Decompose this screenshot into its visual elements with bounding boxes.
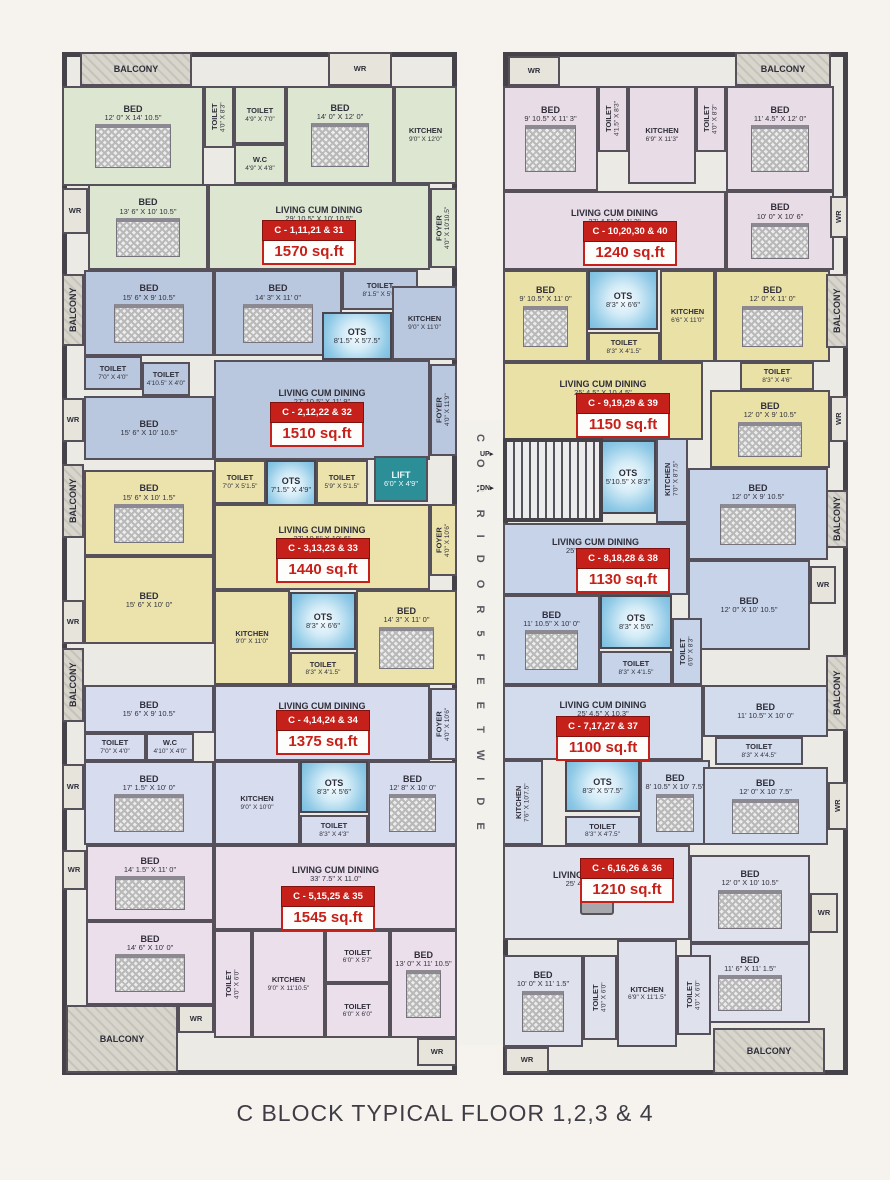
room-bed: BED15' 6" X 10' 10.5" xyxy=(84,396,214,460)
toilet-dimensions: 4'0" X 6'0" xyxy=(601,983,608,1013)
kitchen-label: KITCHEN xyxy=(408,315,441,323)
kitchen-dimensions: 9'0" X 11'0" xyxy=(236,638,269,645)
bed-dimensions: 12' 0" X 10' 7.5" xyxy=(739,788,792,796)
bed-dimensions: 12' 0" X 14' 10.5" xyxy=(105,114,162,122)
room-balcony: BALCONY xyxy=(62,274,84,346)
stairs-up-text: UP xyxy=(480,451,490,458)
room-kitchen: KITCHEN7'6" X 10'7.5" xyxy=(503,760,543,845)
room-bed: BED14' 1.5" X 11' 0" xyxy=(86,845,214,921)
kitchen-label: KITCHEN xyxy=(630,986,663,994)
toilet-label: TOILET xyxy=(611,339,638,347)
toilet-label: TOILET xyxy=(102,739,129,747)
kitchen-label: KITCHEN xyxy=(240,795,273,803)
toilet-label: TOILET xyxy=(225,971,233,998)
kitchen-dimensions: 7'0" X 8'7.5" xyxy=(673,462,680,497)
room-ots: OTS8'3" X 5'6" xyxy=(600,595,672,649)
room-bed: BED12' 0" X 9' 10.5" xyxy=(688,468,828,560)
room-ots: OTS8'3" X 6'6" xyxy=(588,270,658,330)
room-ots: OTS7'1.5" X 4'9" xyxy=(266,460,316,510)
unit-code: C - 4,14,24 & 34 xyxy=(276,710,370,731)
bed-icon xyxy=(751,223,809,259)
foyer-label: FOYER xyxy=(436,711,444,737)
toilet-dimensions: 8'3" X 4'1.5" xyxy=(306,669,341,676)
room-wr: WR xyxy=(830,396,848,442)
room-wr: WR xyxy=(505,1047,549,1073)
unit-code: C - 7,17,27 & 37 xyxy=(556,716,650,737)
toilet-label: TOILET xyxy=(227,474,254,482)
room-bed: BED15' 6" X 10' 1.5" xyxy=(84,470,214,556)
foyer-dimensions: 4'0" X 10'10.5" xyxy=(444,207,451,249)
unit-code: C - 2,12,22 & 32 xyxy=(270,402,364,423)
unit-label: C - 7,17,27 & 371100 sq.ft xyxy=(556,716,650,761)
kitchen-label: KITCHEN xyxy=(664,462,672,495)
bed-dimensions: 11' 10.5" X 10' 0" xyxy=(737,712,793,720)
room-ots: OTS8'3" X 5'7.5" xyxy=(565,760,640,812)
room-wr: WR xyxy=(62,850,86,890)
room-balcony: BALCONY xyxy=(66,1005,178,1073)
kitchen-dimensions: 6'9" X 11'1.5" xyxy=(628,994,666,1001)
room-kitchen: KITCHEN9'0" X 11'10.5" xyxy=(252,930,325,1038)
unit-code: C - 9,19,29 & 39 xyxy=(576,393,670,414)
wr-label: WR xyxy=(68,866,81,874)
bed-icon xyxy=(742,306,804,347)
bed-icon xyxy=(243,304,312,343)
room-bed: BED12' 0" X 11' 0" xyxy=(715,270,830,362)
bed-dimensions: 12' 0" X 10' 10.5" xyxy=(722,879,779,887)
bed-dimensions: 17' 1.5" X 10' 0" xyxy=(123,784,176,792)
room-wr: WR xyxy=(328,52,392,86)
room-bed: BED12' 0" X 10' 10.5" xyxy=(688,560,810,650)
bed-dimensions: 12' 0" X 10' 10.5" xyxy=(721,606,778,614)
unit-label: C - 10,20,30 & 401240 sq.ft xyxy=(583,221,677,266)
room-wc: W.C4'10" X 4'0" xyxy=(146,733,194,761)
bed-dimensions: 14' 0" X 12' 0" xyxy=(317,113,364,121)
room-bed: BED11' 10.5" X 10' 0" xyxy=(703,685,828,737)
stairs-up-label: UP▸ xyxy=(479,450,494,458)
toilet-label: TOILET xyxy=(686,982,694,1009)
bed-dimensions: 15' 6" X 9' 10.5" xyxy=(123,294,176,302)
toilet-label: TOILET xyxy=(310,661,337,669)
room-toilet: TOILET4'0" X 6'0" xyxy=(214,930,252,1038)
room-toilet: TOILET5'9" X 5'1.5" xyxy=(316,460,368,504)
bed-icon xyxy=(389,794,437,832)
toilet-label: TOILET xyxy=(605,106,613,133)
foyer-label: FOYER xyxy=(436,397,444,423)
unit-code: C - 6,16,26 & 36 xyxy=(580,858,674,879)
bed-icon xyxy=(523,306,568,347)
bed-label: BED xyxy=(770,202,789,212)
toilet-label: TOILET xyxy=(211,104,219,131)
stairs-dn-label: DN▸ xyxy=(479,484,495,492)
balcony-label: BALCONY xyxy=(100,1034,145,1044)
bed-dimensions: 9' 10.5" X 11' 0" xyxy=(519,295,571,303)
unit-label: C - 5,15,25 & 351545 sq.ft xyxy=(281,886,375,931)
toilet-label: TOILET xyxy=(623,660,650,668)
toilet-label: TOILET xyxy=(344,949,371,957)
room-toilet: TOILET4'1.5" X 8'3" xyxy=(598,86,628,152)
bed-icon xyxy=(406,970,442,1018)
toilet-dimensions: 7'0" X 5'1.5" xyxy=(223,483,258,490)
room-ots: OTS5'10.5" X 8'3" xyxy=(600,440,656,514)
toilet-dimensions: 8'3" X 4'3" xyxy=(319,831,349,838)
kitchen-label: KITCHEN xyxy=(272,976,305,984)
room-balcony: BALCONY xyxy=(62,464,84,538)
bed-dimensions: 15' 6" X 10' 1.5" xyxy=(123,494,176,502)
room-bed: BED8' 10.5" X 10' 7.5" xyxy=(640,760,710,845)
bed-dimensions: 13' 6" X 10' 10.5" xyxy=(120,208,177,216)
room-foyer: FOYER4'0" X 10'10.5" xyxy=(430,188,457,268)
kitchen-dimensions: 9'0" X 10'0" xyxy=(240,804,273,811)
toilet-dimensions: 6'0" X 5'7" xyxy=(343,957,373,964)
room-kitchen: KITCHEN9'0" X 11'0" xyxy=(392,286,457,360)
room-kitchen: KITCHEN6'9" X 11'1.5" xyxy=(617,940,677,1047)
toilet-label: TOILET xyxy=(703,106,711,133)
balcony-label: BALCONY xyxy=(832,671,842,716)
bed-icon xyxy=(114,794,184,832)
room-bed: BED15' 6" X 10' 0" xyxy=(84,556,214,644)
bed-icon xyxy=(311,123,369,167)
unit-label: C - 6,16,26 & 361210 sq.ft xyxy=(580,858,674,903)
room-bed: BED12' 0" X 9' 10.5" xyxy=(710,390,830,468)
room-bed: BED10' 0" X 10' 6" xyxy=(726,191,834,270)
wr-label: WR xyxy=(817,581,830,589)
unit-area: 1240 sq.ft xyxy=(583,242,677,266)
room-toilet: TOILET8'3" X 4'1.5" xyxy=(588,332,660,362)
kitchen-label: KITCHEN xyxy=(515,786,523,819)
room-wr: WR xyxy=(810,566,836,604)
unit-area: 1570 sq.ft xyxy=(262,241,356,265)
room-kitchen: KITCHEN6'9" X 11'3" xyxy=(628,86,696,184)
bed-dimensions: 9' 10.5" X 11' 3" xyxy=(524,115,576,123)
kitchen-dimensions: 9'0" X 12'0" xyxy=(409,136,442,143)
room-toilet: TOILET4'9" X 7'0" xyxy=(234,86,286,144)
unit-area: 1510 sq.ft xyxy=(270,423,364,447)
toilet-dimensions: 4'0" X 8'3" xyxy=(220,102,227,132)
balcony-label: BALCONY xyxy=(832,497,842,542)
room-bed: BED11' 10.5" X 10' 0" xyxy=(503,595,600,685)
bed-icon xyxy=(379,627,433,669)
room-balcony: BALCONY xyxy=(826,655,848,731)
toilet-dimensions: 8'3" X 4'4.5" xyxy=(742,752,777,759)
room-balcony: BALCONY xyxy=(80,52,192,86)
wr-label: WR xyxy=(521,1056,534,1064)
bed-dimensions: 13' 0" X 11' 10.5" xyxy=(395,960,451,968)
bed-dimensions: 12' 0" X 11' 0" xyxy=(750,295,796,303)
lift-dimensions: 6'0" X 4'9" xyxy=(384,480,418,488)
foyer-dimensions: 4'0" X 10'6" xyxy=(444,707,451,740)
ots-dimensions: 8'3" X 5'7.5" xyxy=(582,787,622,795)
room-toilet: TOILET7'0" X 4'0" xyxy=(84,356,142,390)
bed-icon xyxy=(525,125,576,172)
room-foyer: FOYER4'0" X 11'9" xyxy=(430,364,457,456)
kitchen-label: KITCHEN xyxy=(235,630,268,638)
room-bed: BED12' 0" X 14' 10.5" xyxy=(62,86,204,186)
wr-label: WR xyxy=(834,800,842,813)
toilet-label: TOILET xyxy=(329,474,356,482)
room-toilet: TOILET6'0" X 6'0" xyxy=(325,983,390,1038)
toilet-dimensions: 4'0" X 6'0" xyxy=(234,969,241,999)
toilet-label: TOILET xyxy=(247,107,274,115)
unit-label: C - 4,14,24 & 341375 sq.ft xyxy=(276,710,370,755)
unit-label: C - 9,19,29 & 391150 sq.ft xyxy=(576,393,670,438)
wr-label: WR xyxy=(69,207,82,215)
ots-dimensions: 8'3" X 5'6" xyxy=(317,788,351,796)
foyer-dimensions: 4'0" X 11'9" xyxy=(444,394,451,427)
balcony-label: BALCONY xyxy=(114,64,159,74)
room-kitchen: KITCHEN9'0" X 12'0" xyxy=(394,86,457,184)
room-toilet: TOILET8'3" X 4'3" xyxy=(300,815,368,845)
room-foyer: FOYER4'0" X 10'6" xyxy=(430,504,457,576)
corridor-label: C O R R I D O R 5 F E E T W I D E xyxy=(474,434,486,837)
room-wr: WR xyxy=(828,782,848,830)
kitchen-dimensions: 6'9" X 11'3" xyxy=(646,136,679,143)
bed-icon xyxy=(115,876,184,910)
kitchen-label: KITCHEN xyxy=(409,127,442,135)
room-toilet: TOILET4'0" X 8'3" xyxy=(204,86,234,148)
foyer-dimensions: 4'0" X 10'6" xyxy=(444,523,451,556)
room-toilet: TOILET8'3" X 4'7.5" xyxy=(565,816,640,845)
room-kitchen: KITCHEN7'0" X 8'7.5" xyxy=(656,435,688,523)
bed-dimensions: 12' 8" X 10' 0" xyxy=(389,784,436,792)
wc-dimensions: 4'10" X 4'0" xyxy=(153,748,186,755)
toilet-dimensions: 6'0" X 6'0" xyxy=(343,1011,373,1018)
room-bed: BED17' 1.5" X 10' 0" xyxy=(84,761,214,845)
wc-dimensions: 4'9" X 4'8" xyxy=(245,165,275,172)
kitchen-label: KITCHEN xyxy=(645,127,678,135)
kitchen-dimensions: 6'6" X 11'0" xyxy=(671,317,704,324)
unit-area: 1100 sq.ft xyxy=(556,737,650,761)
toilet-label: TOILET xyxy=(746,743,773,751)
ots-dimensions: 7'1.5" X 4'9" xyxy=(271,486,311,494)
bed-dimensions: 14' 1.5" X 11' 0" xyxy=(124,866,176,874)
wr-label: WR xyxy=(67,783,80,791)
room-bed: BED9' 10.5" X 11' 3" xyxy=(503,86,598,191)
bed-dimensions: 15' 6" X 10' 0" xyxy=(126,601,173,609)
bed-dimensions: 15' 6" X 9' 10.5" xyxy=(123,710,176,718)
bed-dimensions: 15' 6" X 10' 10.5" xyxy=(121,429,178,437)
bed-dimensions: 10' 0" X 10' 6" xyxy=(757,213,804,221)
toilet-label: TOILET xyxy=(344,1003,371,1011)
room-toilet: TOILET8'3" X 4'4.5" xyxy=(715,737,803,765)
room-balcony: BALCONY xyxy=(826,274,848,348)
room-wr: WR xyxy=(62,600,84,644)
bed-dimensions: 11' 10.5" X 10' 0" xyxy=(523,620,579,628)
room-ots: OTS8'1.5" X 5'7.5" xyxy=(322,312,392,360)
toilet-dimensions: 4'9" X 7'0" xyxy=(245,116,275,123)
room-bed: BED14' 3" X 11' 0" xyxy=(356,590,457,685)
room-wr: WR xyxy=(830,196,848,238)
bed-dimensions: 12' 0" X 9' 10.5" xyxy=(732,493,785,501)
balcony-label: BALCONY xyxy=(832,289,842,334)
toilet-label: TOILET xyxy=(100,365,127,373)
bed-dimensions: 11' 4.5" X 12' 0" xyxy=(754,115,806,123)
bed-icon xyxy=(114,504,184,543)
room-toilet: TOILET6'0" X 5'7" xyxy=(325,930,390,983)
room-ots: OTS8'3" X 6'6" xyxy=(290,592,356,650)
toilet-label: TOILET xyxy=(679,638,687,665)
toilet-label: TOILET xyxy=(321,822,348,830)
bed-icon xyxy=(720,504,796,545)
room-toilet: TOILET4'0" X 8'3" xyxy=(696,86,726,152)
wr-label: WR xyxy=(818,909,831,917)
unit-code: C - 1,11,21 & 31 xyxy=(262,220,356,241)
room-toilet: TOILET4'0" X 6'0" xyxy=(583,955,617,1040)
toilet-dimensions: 8'3" X 4'1.5" xyxy=(607,348,642,355)
wc-label: W.C xyxy=(163,739,177,747)
balcony-label: BALCONY xyxy=(747,1046,792,1056)
room-kitchen: KITCHEN9'0" X 11'0" xyxy=(214,590,290,685)
unit-code: C - 8,18,28 & 38 xyxy=(576,548,670,569)
wr-label: WR xyxy=(431,1048,444,1056)
room-bed: BED12' 8" X 10' 0" xyxy=(368,761,457,845)
toilet-dimensions: 5'9" X 5'1.5" xyxy=(325,483,360,490)
toilet-dimensions: 7'0" X 4'0" xyxy=(100,748,130,755)
toilet-dimensions: 8'3" X 4'6" xyxy=(762,377,792,384)
unit-label: C - 1,11,21 & 311570 sq.ft xyxy=(262,220,356,265)
room-wr: WR xyxy=(810,893,838,933)
unit-label: C - 3,13,23 & 331440 sq.ft xyxy=(276,538,370,583)
bed-icon xyxy=(738,422,803,457)
toilet-dimensions: 6'0" X 8'3" xyxy=(688,637,695,667)
room-toilet: TOILET8'3" X 4'1.5" xyxy=(600,651,672,685)
stairs-arrow-icon: ▸ xyxy=(490,451,494,458)
room-wr: WR xyxy=(508,56,560,86)
kitchen-dimensions: 7'6" X 10'7.5" xyxy=(524,783,531,822)
room-kitchen: KITCHEN9'0" X 10'0" xyxy=(214,761,300,845)
unit-area: 1130 sq.ft xyxy=(576,569,670,593)
toilet-dimensions: 4'0" X 8'3" xyxy=(712,104,719,134)
wr-label: WR xyxy=(835,211,843,224)
bed-dimensions: 14' 3" X 11' 0" xyxy=(384,616,430,624)
room-bed: BED14' 6" X 10' 0" xyxy=(86,921,214,1005)
toilet-dimensions: 4'0" X 6'0" xyxy=(695,980,702,1010)
room-bed: BED12' 0" X 10' 7.5" xyxy=(703,767,828,845)
room-wr: WR xyxy=(62,764,84,810)
wr-label: WR xyxy=(354,65,367,73)
unit-label: C - 8,18,28 & 381130 sq.ft xyxy=(576,548,670,593)
foyer-label: FOYER xyxy=(436,215,444,241)
room-bed: BED13' 0" X 11' 10.5" xyxy=(390,930,457,1038)
unit-area: 1375 sq.ft xyxy=(276,731,370,755)
room-toilet: TOILET6'0" X 8'3" xyxy=(672,618,702,685)
bed-icon xyxy=(718,890,783,929)
bed-icon xyxy=(718,975,783,1011)
room-toilet: TOILET4'10.5" X 4'0" xyxy=(142,362,190,396)
room-wr: WR xyxy=(62,188,88,234)
bed-icon xyxy=(95,124,172,168)
toilet-dimensions: 7'0" X 4'0" xyxy=(98,374,128,381)
bed-dimensions: 12' 0" X 9' 10.5" xyxy=(744,411,797,419)
room-wr: WR xyxy=(62,398,84,442)
kitchen-dimensions: 9'0" X 11'0" xyxy=(408,324,441,331)
wr-label: WR xyxy=(190,1015,203,1023)
bed-icon xyxy=(732,799,799,834)
toilet-dimensions: 8'3" X 4'1.5" xyxy=(619,669,654,676)
plan-title: C BLOCK TYPICAL FLOOR 1,2,3 & 4 xyxy=(0,1100,890,1127)
room-balcony: BALCONY xyxy=(62,648,84,722)
wr-label: WR xyxy=(67,618,80,626)
balcony-label: BALCONY xyxy=(68,288,78,333)
room-bed: BED15' 6" X 9' 10.5" xyxy=(84,685,214,733)
kitchen-dimensions: 9'0" X 11'10.5" xyxy=(268,985,310,992)
unit-area: 1545 sq.ft xyxy=(281,907,375,931)
toilet-dimensions: 8'3" X 4'7.5" xyxy=(585,831,620,838)
bed-icon xyxy=(656,794,693,832)
unit-area: 1150 sq.ft xyxy=(576,414,670,438)
room-foyer: FOYER4'0" X 10'6" xyxy=(430,688,457,760)
ots-dimensions: 8'3" X 6'6" xyxy=(306,622,340,630)
bed-icon xyxy=(525,630,577,670)
balcony-label: BALCONY xyxy=(68,663,78,708)
room-kitchen: KITCHEN6'6" X 11'0" xyxy=(660,270,715,362)
bed-icon xyxy=(751,125,809,172)
bed-dimensions: 14' 3" X 11' 0" xyxy=(255,294,301,302)
toilet-label: TOILET xyxy=(764,368,791,376)
balcony-label: BALCONY xyxy=(68,479,78,524)
foyer-label: FOYER xyxy=(436,527,444,553)
room-wc: W.C4'9" X 4'8" xyxy=(234,144,286,184)
toilet-label: TOILET xyxy=(589,823,616,831)
unit-area: 1440 sq.ft xyxy=(276,559,370,583)
room-balcony: BALCONY xyxy=(713,1028,825,1074)
stairs-arrow-icon: ▸ xyxy=(490,485,494,492)
toilet-label: TOILET xyxy=(153,371,180,379)
room-wr: WR xyxy=(417,1038,457,1066)
wr-label: WR xyxy=(528,67,541,75)
wc-label: W.C xyxy=(253,156,267,164)
unit-code: C - 3,13,23 & 33 xyxy=(276,538,370,559)
bed-dimensions: 14' 6" X 10' 0" xyxy=(127,944,174,952)
room-balcony: BALCONY xyxy=(826,490,848,548)
room-bed: BED15' 6" X 9' 10.5" xyxy=(84,270,214,356)
staircase xyxy=(503,438,603,522)
room-ots: OTS8'3" X 5'6" xyxy=(300,761,368,813)
floor-plan: C BLOCK TYPICAL FLOOR 1,2,3 & 4 C O R R … xyxy=(0,0,890,1180)
unit-code: C - 10,20,30 & 40 xyxy=(583,221,677,242)
corridor: C O R R I D O R 5 F E E T W I D E xyxy=(457,420,503,1045)
stairs-dn-text: DN xyxy=(480,485,490,492)
balcony-label: BALCONY xyxy=(761,64,806,74)
bed-dimensions: 11' 6" X 11' 1.5" xyxy=(724,965,776,973)
bed-icon xyxy=(522,991,565,1032)
ots-dimensions: 8'1.5" X 5'7.5" xyxy=(334,337,381,345)
room-toilet: TOILET8'3" X 4'1.5" xyxy=(290,652,356,685)
room-toilet: TOILET8'3" X 4'6" xyxy=(740,362,814,390)
bed-dimensions: 8' 10.5" X 10' 7.5" xyxy=(645,783,704,791)
room-toilet: TOILET7'0" X 4'0" xyxy=(84,733,146,761)
room-bed: BED11' 4.5" X 12' 0" xyxy=(726,86,834,191)
wr-label: WR xyxy=(67,416,80,424)
unit-code: C - 5,15,25 & 35 xyxy=(281,886,375,907)
bed-icon xyxy=(114,304,184,343)
room-wr: WR xyxy=(178,1005,214,1033)
bed-dimensions: 10' 0" X 11' 1.5" xyxy=(517,980,569,988)
room-toilet: TOILET7'0" X 5'1.5" xyxy=(214,460,266,504)
toilet-dimensions: 4'1.5" X 8'3" xyxy=(614,102,621,137)
room-balcony: BALCONY xyxy=(735,52,831,86)
room-bed: BED14' 0" X 12' 0" xyxy=(286,86,394,184)
unit-label: C - 2,12,22 & 321510 sq.ft xyxy=(270,402,364,447)
toilet-label: TOILET xyxy=(592,984,600,1011)
room-lift: LIFT6'0" X 4'9" xyxy=(374,456,428,502)
ots-dimensions: 8'3" X 5'6" xyxy=(619,623,653,631)
bed-icon xyxy=(116,218,181,257)
toilet-label: TOILET xyxy=(367,282,394,290)
room-bed: BED13' 6" X 10' 10.5" xyxy=(88,184,208,270)
toilet-dimensions: 4'10.5" X 4'0" xyxy=(147,380,186,387)
ots-dimensions: 5'10.5" X 8'3" xyxy=(606,478,650,486)
room-toilet: TOILET4'0" X 6'0" xyxy=(677,955,711,1035)
